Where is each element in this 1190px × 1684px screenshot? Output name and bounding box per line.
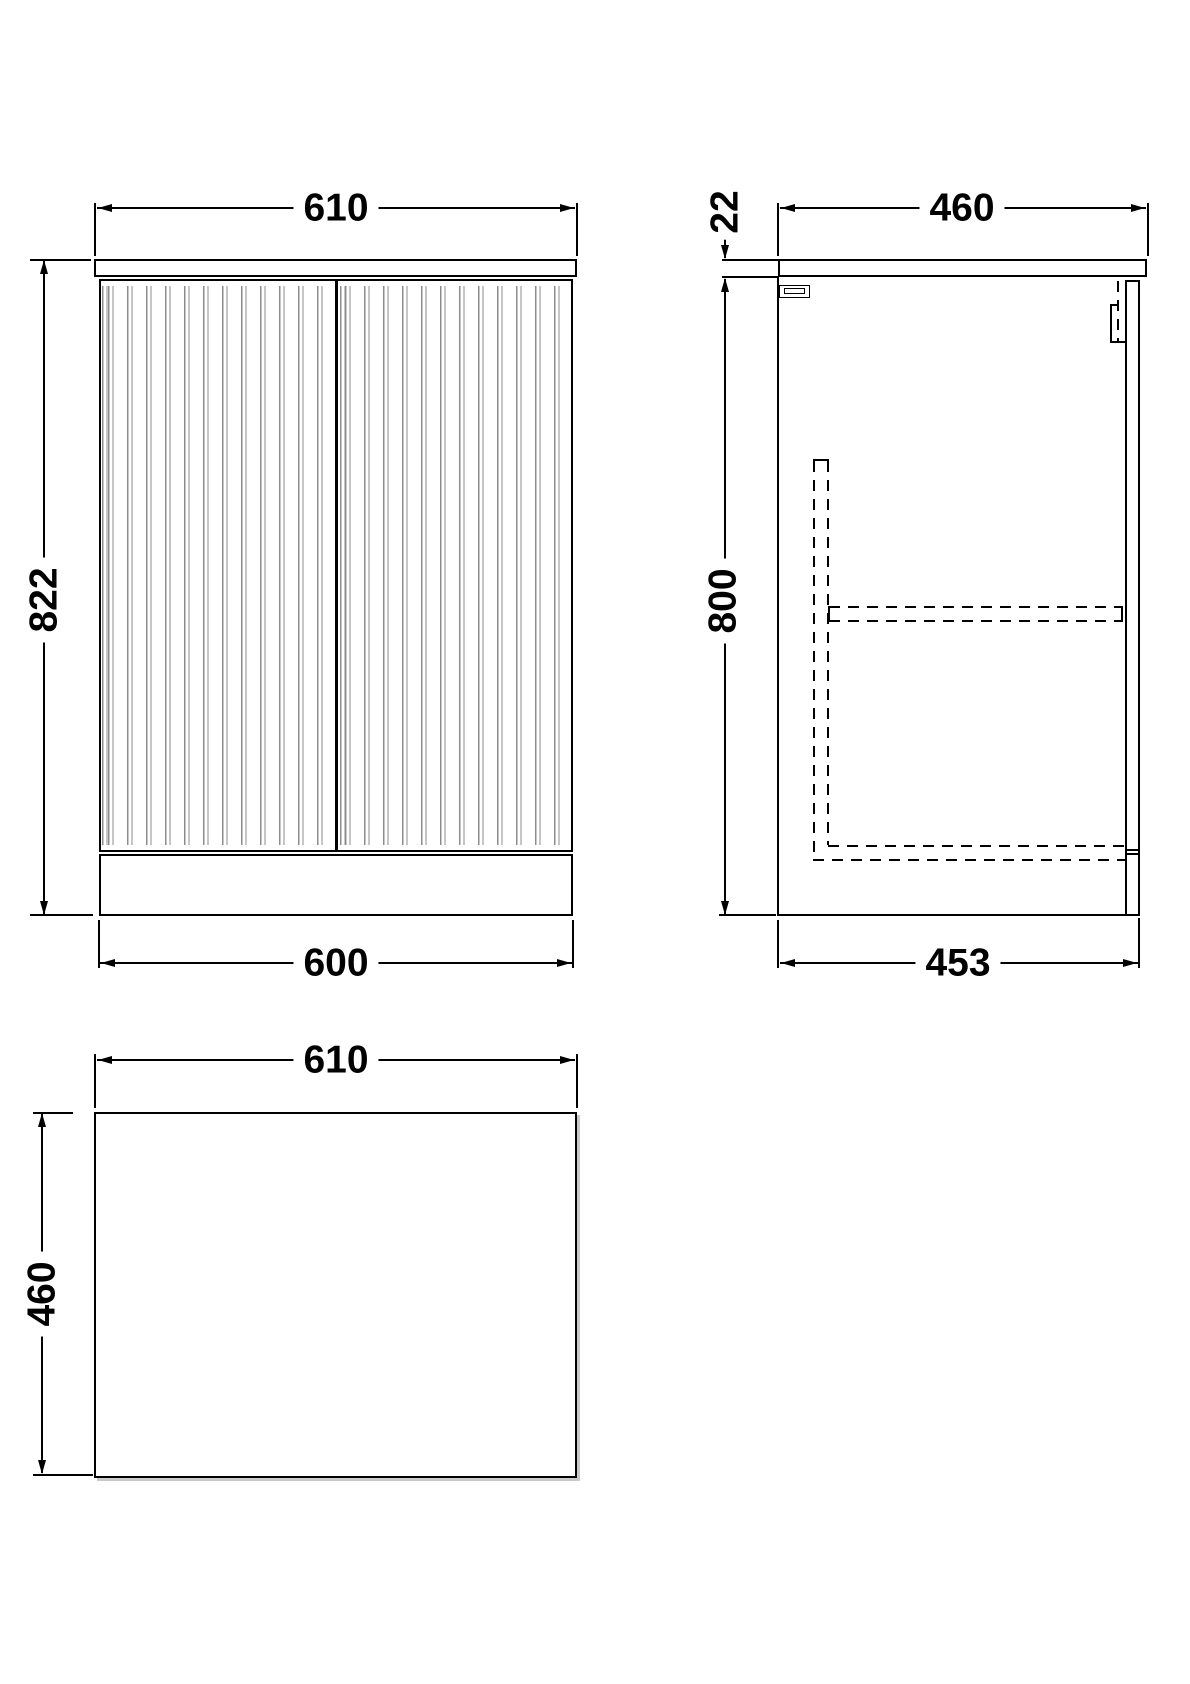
plan-dim-depth-arrow-top bbox=[38, 1113, 46, 1127]
front-dim-height-label: 822 bbox=[23, 557, 66, 642]
side-back-panel-line bbox=[777, 277, 779, 916]
side-mid-shelf-top bbox=[829, 606, 1123, 608]
side-door-panel bbox=[1125, 280, 1140, 916]
side-dim-depth-arrow-right bbox=[1131, 204, 1145, 212]
side-mid-shelf-cap-right bbox=[1121, 606, 1123, 622]
side-dim-bottom-ext-right bbox=[1138, 918, 1140, 968]
plan-dim-depth-tick-bottom bbox=[33, 1474, 93, 1476]
front-dim-top-arrow-right bbox=[560, 204, 574, 212]
side-dim-depth-ext-left bbox=[777, 203, 779, 256]
side-hinge-dashed-line bbox=[1117, 281, 1119, 342]
side-base-shelf-top bbox=[828, 845, 1125, 847]
side-dim-thickness-tick-bottom bbox=[722, 276, 778, 278]
front-dim-bottom-arrow-right bbox=[557, 959, 571, 967]
side-dim-thickness-tick-top bbox=[722, 259, 778, 261]
front-dim-top-label: 610 bbox=[293, 187, 378, 230]
front-worktop bbox=[94, 259, 577, 277]
side-dim-height-arrow-top bbox=[721, 278, 729, 292]
side-dim-depth-arrow-left bbox=[781, 204, 795, 212]
side-dim-depth-label: 460 bbox=[919, 187, 1004, 230]
plan-dim-width-ext-left bbox=[94, 1054, 96, 1108]
side-base-shelf-bottom bbox=[813, 859, 1125, 861]
front-door-left bbox=[101, 281, 335, 850]
front-dim-bottom-arrow-left bbox=[101, 959, 115, 967]
plan-dim-width-ext-right bbox=[576, 1054, 578, 1108]
side-dim-bottom-arrow-left bbox=[781, 959, 795, 967]
front-dim-bottom-label: 600 bbox=[293, 942, 378, 985]
front-door-right bbox=[338, 281, 572, 850]
front-plinth bbox=[99, 854, 573, 916]
front-dim-top-ext-left bbox=[94, 203, 96, 256]
technical-drawing: 610 822 600 bbox=[0, 0, 1190, 1684]
side-dim-bottom-arrow-right bbox=[1123, 959, 1137, 967]
front-dim-height-arrow-bottom bbox=[40, 901, 48, 915]
side-door-bottom-edge bbox=[1125, 849, 1140, 851]
side-dim-thickness-arrow bbox=[721, 245, 729, 259]
side-plinth-top-edge bbox=[1125, 853, 1140, 855]
side-dim-bottom-label: 453 bbox=[915, 942, 1000, 985]
side-hinge-step-bottom bbox=[1110, 341, 1125, 343]
side-dim-depth-ext-right bbox=[1147, 203, 1149, 256]
side-hinge-step-side bbox=[1110, 304, 1112, 342]
front-dim-top-arrow-left bbox=[98, 204, 112, 212]
side-dim-bottom-ext-left bbox=[777, 920, 779, 968]
side-mid-shelf-bottom bbox=[829, 620, 1123, 622]
plan-dim-depth-label: 460 bbox=[21, 1251, 64, 1336]
side-bottom-line bbox=[777, 914, 1140, 916]
side-dim-thickness-label: 22 bbox=[704, 184, 747, 239]
side-void-inner-line bbox=[827, 461, 829, 845]
front-dim-bottom-ext-right bbox=[572, 920, 574, 968]
side-dim-height-arrow-bottom bbox=[721, 901, 729, 915]
side-void-outer-line bbox=[813, 461, 815, 859]
side-fixing-bracket-inner bbox=[784, 288, 805, 294]
side-dim-height-label: 800 bbox=[702, 558, 745, 643]
plan-dim-width-arrow-right bbox=[560, 1056, 574, 1064]
front-dim-bottom-ext-left bbox=[98, 920, 100, 968]
front-doors bbox=[99, 279, 573, 852]
front-dim-top-ext-right bbox=[576, 203, 578, 256]
front-dim-height-arrow-top bbox=[40, 260, 48, 274]
plan-dim-width-arrow-left bbox=[98, 1056, 112, 1064]
side-mid-shelf-cap-left bbox=[828, 606, 830, 622]
plan-dim-width-label: 610 bbox=[293, 1039, 378, 1082]
plan-dim-depth-arrow-bottom bbox=[38, 1460, 46, 1474]
plan-worktop bbox=[94, 1112, 577, 1478]
side-worktop bbox=[778, 259, 1147, 277]
